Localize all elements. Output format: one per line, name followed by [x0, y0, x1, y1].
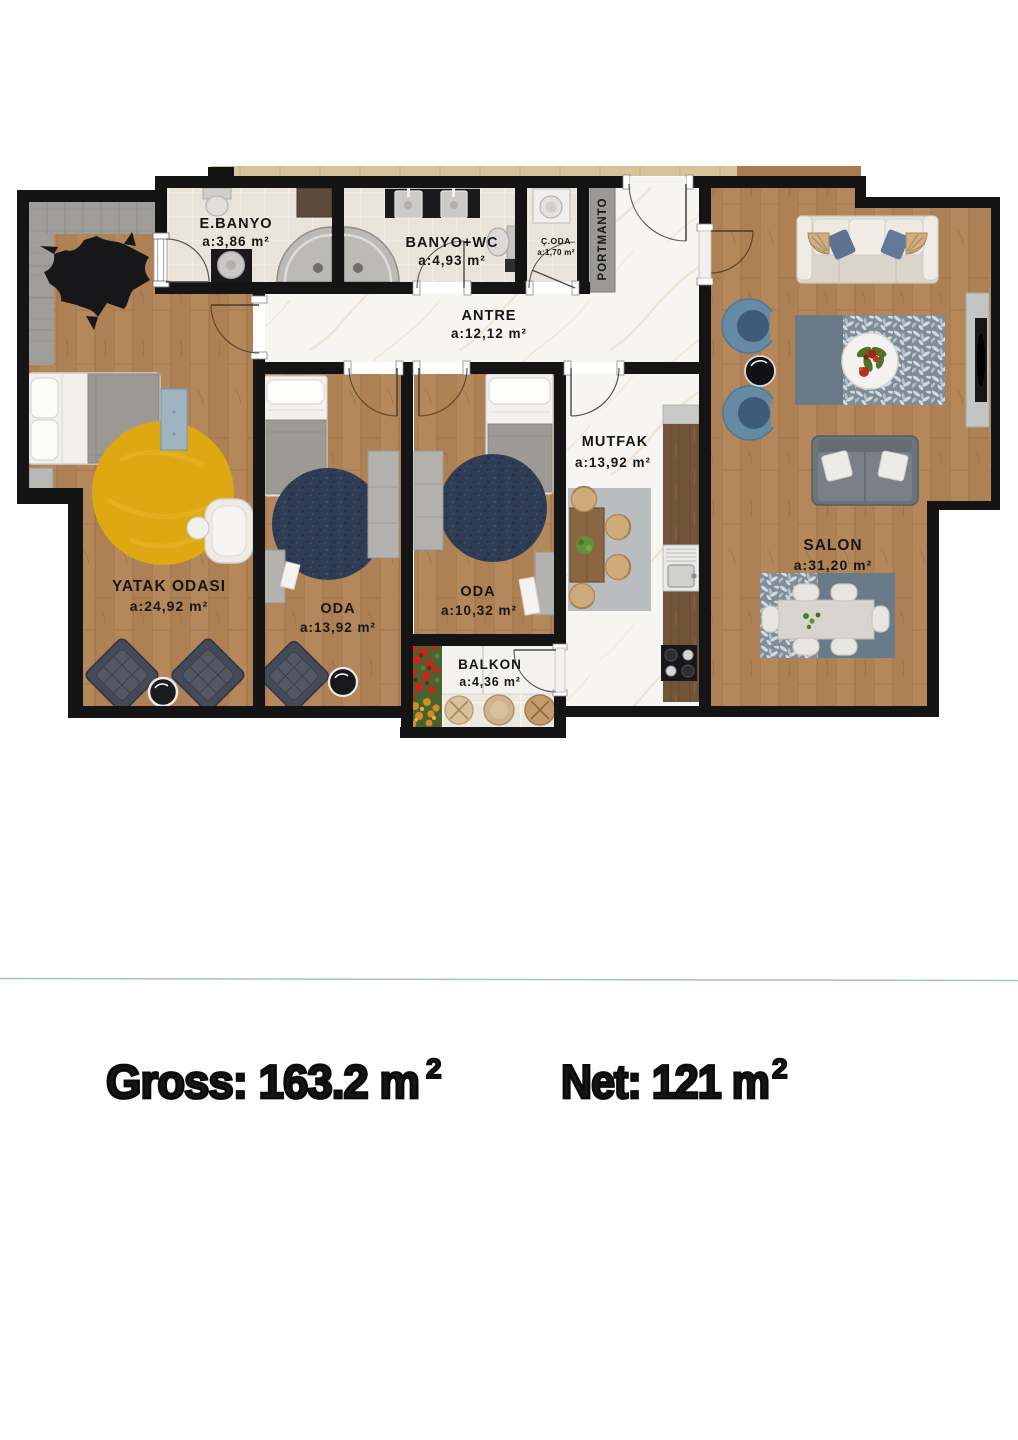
svg-text:a:10,32 m²: a:10,32 m²	[441, 603, 517, 618]
svg-text:ODA: ODA	[460, 584, 495, 600]
svg-text:a:13,92 m²: a:13,92 m²	[575, 455, 651, 470]
svg-text:a:3,86 m²: a:3,86 m²	[202, 234, 270, 249]
svg-text:ODA: ODA	[320, 601, 355, 617]
svg-text:a:13,92 m²: a:13,92 m²	[300, 620, 376, 635]
svg-text:SALON: SALON	[803, 537, 862, 554]
svg-text:a:1,70 m²: a:1,70 m²	[537, 248, 574, 257]
svg-text:a:12,12 m²: a:12,12 m²	[451, 326, 527, 341]
svg-text:Ç.ODA: Ç.ODA	[541, 236, 571, 246]
svg-text:E.BANYO: E.BANYO	[199, 216, 272, 232]
svg-text:PORTMANTO: PORTMANTO	[597, 198, 609, 281]
svg-text:a:24,92 m²: a:24,92 m²	[130, 598, 208, 614]
svg-text:2: 2	[772, 1053, 788, 1084]
svg-text:a:4,36 m²: a:4,36 m²	[459, 675, 520, 689]
svg-text:a:31,20 m²: a:31,20 m²	[794, 557, 872, 573]
svg-text:Gross: 163.2 m: Gross: 163.2 m	[106, 1055, 419, 1108]
svg-text:ANTRE: ANTRE	[462, 308, 517, 324]
svg-text:Net: 121 m: Net: 121 m	[561, 1055, 769, 1108]
svg-text:BALKON: BALKON	[458, 657, 522, 672]
svg-text:2: 2	[426, 1053, 442, 1084]
svg-text:MUTFAK: MUTFAK	[582, 434, 648, 450]
svg-text:BANYO+WC: BANYO+WC	[406, 235, 499, 251]
svg-text:a:4,93 m²: a:4,93 m²	[418, 253, 486, 268]
svg-text:YATAK ODASI: YATAK ODASI	[112, 578, 226, 595]
